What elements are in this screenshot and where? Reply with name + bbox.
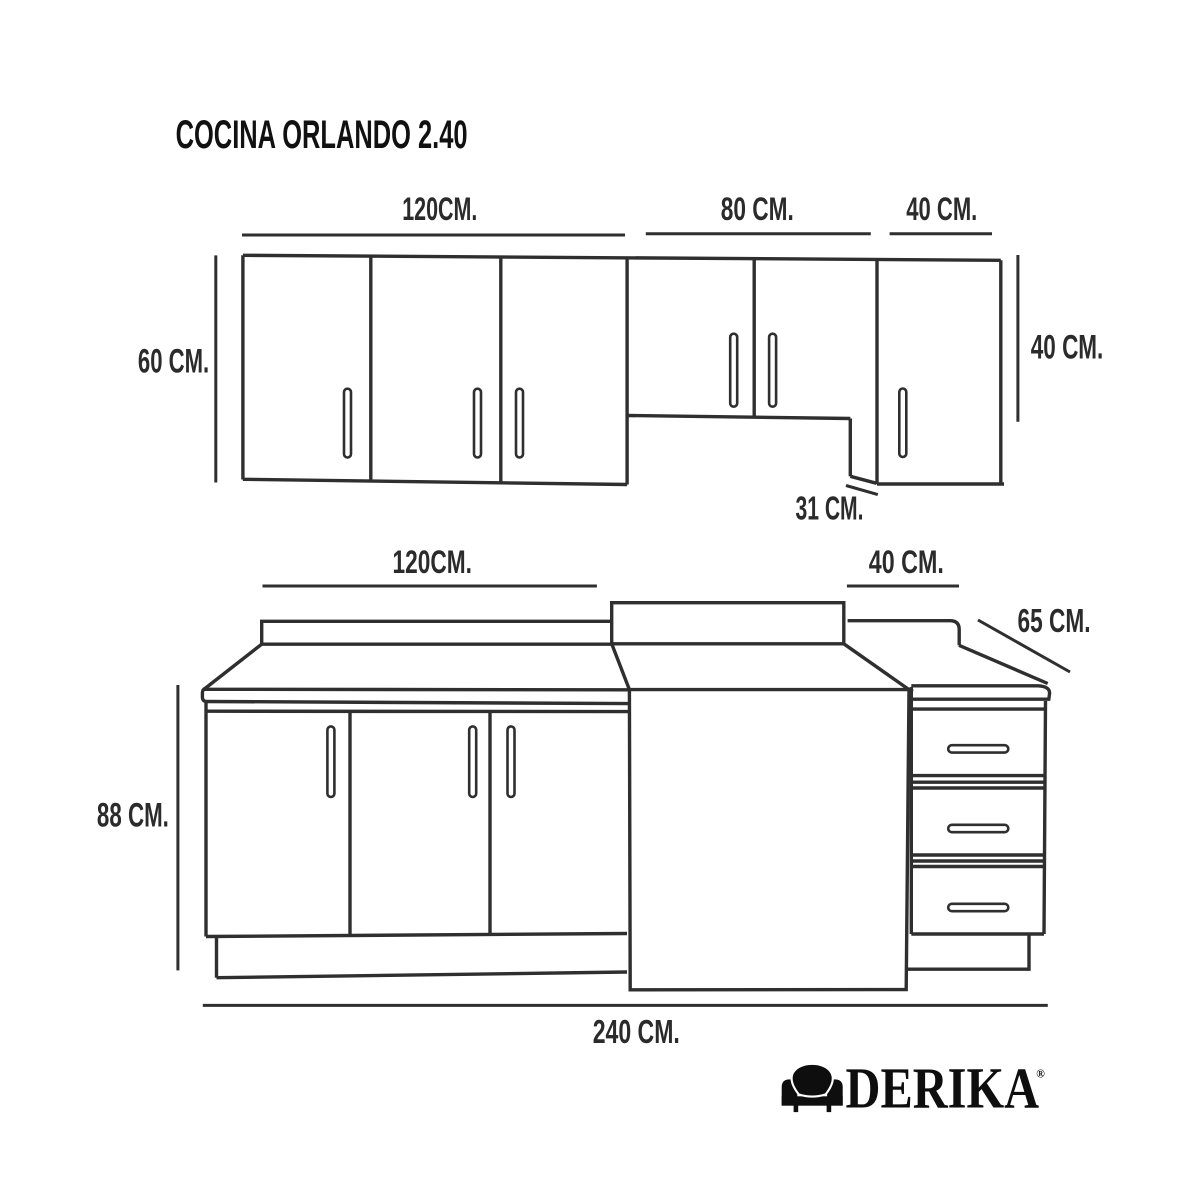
svg-text:120CM.: 120CM. xyxy=(402,191,477,227)
svg-text:DERIKA: DERIKA xyxy=(846,1055,1040,1120)
svg-text:®: ® xyxy=(1036,1069,1045,1081)
svg-text:88 CM.: 88 CM. xyxy=(97,796,169,834)
svg-text:120CM.: 120CM. xyxy=(393,544,472,580)
svg-text:65 CM.: 65 CM. xyxy=(1018,602,1091,639)
svg-text:COCINA ORLANDO 2.40: COCINA ORLANDO 2.40 xyxy=(176,113,468,157)
svg-text:60 CM.: 60 CM. xyxy=(138,342,209,380)
svg-text:240 CM.: 240 CM. xyxy=(593,1014,680,1051)
svg-text:40 CM.: 40 CM. xyxy=(1031,329,1104,367)
svg-text:80 CM.: 80 CM. xyxy=(721,191,794,227)
svg-text:31 CM.: 31 CM. xyxy=(796,489,864,526)
svg-text:40 CM.: 40 CM. xyxy=(869,544,944,580)
svg-text:40 CM.: 40 CM. xyxy=(906,191,977,227)
